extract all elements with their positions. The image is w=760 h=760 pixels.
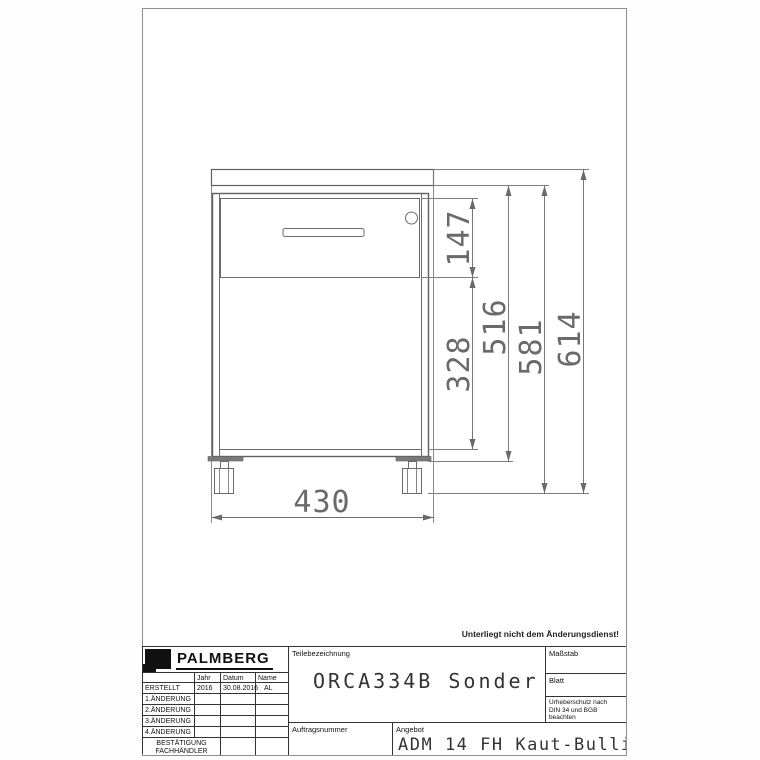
dim-overall-height-value: 614 <box>553 310 588 367</box>
top-panel <box>212 170 434 186</box>
row-aenderung4-label: 4.ÄNDERUNG <box>143 727 195 738</box>
palmberg-logo-mark-small-icon <box>143 664 156 672</box>
col-header-datum: Datum <box>221 673 256 683</box>
drawer-handle <box>283 229 364 237</box>
blatt-label: Blatt <box>546 674 626 685</box>
dim-lower-height-value: 328 <box>442 335 477 392</box>
row-confirmation-name <box>256 738 289 755</box>
left-caster-plate <box>208 457 243 462</box>
col-header-jahr: Jahr <box>195 673 221 683</box>
row-aenderung2-name <box>256 705 289 716</box>
row-aenderung2-label: 2.ÄNDERUNG <box>143 705 195 716</box>
row-aenderung3-jahr <box>195 716 221 727</box>
left-caster-stem <box>221 462 229 469</box>
dim-carcass-height-value: 516 <box>478 298 513 355</box>
blatt-cell: Blatt <box>546 674 626 697</box>
row-erstellt-datum: 30.08.2016 <box>221 683 256 694</box>
dim-drawer-height-value: 147 <box>442 209 477 266</box>
confirmation-line1: BESTÄTIGUNG <box>156 740 206 747</box>
teilebezeichnung-cell: Teilebezeichnung ORCA334B Sonder <box>289 647 546 723</box>
copyright-note: Urheberschutz nach DIN 34 und BGB beacht… <box>546 697 626 722</box>
col-header-name: Name <box>256 673 289 683</box>
teilebezeichnung-label: Teilebezeichnung <box>289 647 545 658</box>
carcass-outline <box>213 194 429 457</box>
row-aenderung4-datum <box>221 727 256 738</box>
rev-header-empty <box>143 673 195 683</box>
angebot-value: ADM 14 FH Kaut-Bullinger <box>398 735 626 755</box>
copyright-line3: beachten <box>549 714 576 721</box>
angebot-label: Angebot <box>393 723 626 734</box>
copyright-cell: Urheberschutz nach DIN 34 und BGB beacht… <box>546 697 626 723</box>
row-aenderung4-jahr <box>195 727 221 738</box>
dim-width-value: 430 <box>293 485 350 520</box>
title-block: PALMBERG Jahr Datum Name ERSTELLT 2016 3… <box>142 646 626 754</box>
right-caster-stem <box>409 462 417 469</box>
lock-cylinder <box>406 212 418 224</box>
row-aenderung1-name <box>256 694 289 705</box>
dim-caster-height-value: 581 <box>514 318 549 375</box>
confirmation-line2: FACHHÄNDLER <box>155 748 207 755</box>
row-aenderung1-jahr <box>195 694 221 705</box>
auftragsnummer-cell: Auftragsnummer <box>289 723 393 755</box>
row-erstellt-label: ERSTELLT <box>143 683 195 694</box>
change-service-note: Unterliegt nicht dem Änderungsdienst! <box>462 629 619 639</box>
right-caster-wheel <box>403 469 422 494</box>
row-aenderung3-name <box>256 716 289 727</box>
row-aenderung2-jahr <box>195 705 221 716</box>
row-confirmation-label: BESTÄTIGUNG FACHHÄNDLER <box>143 738 221 755</box>
row-aenderung1-label: 1.ÄNDERUNG <box>143 694 195 705</box>
left-caster-wheel <box>215 469 234 494</box>
row-aenderung2-datum <box>221 705 256 716</box>
row-erstellt-jahr: 2016 <box>195 683 221 694</box>
logo-cell: PALMBERG <box>143 647 289 673</box>
brand-name: PALMBERG <box>176 650 273 670</box>
angebot-cell: Angebot ADM 14 FH Kaut-Bullinger <box>393 723 626 755</box>
copyright-line1: Urheberschutz nach <box>549 699 607 706</box>
copyright-line2: DIN 34 und BGB <box>549 707 597 714</box>
auftragsnummer-label: Auftragsnummer <box>289 723 392 734</box>
right-caster-plate <box>396 457 431 462</box>
scanned-technical-drawing-sheet: 430 147 328 516 581 614 Unterliegt nicht… <box>0 0 760 760</box>
part-designation-value: ORCA334B Sonder <box>313 669 539 693</box>
drawer-front <box>221 199 420 278</box>
massstab-cell: Maßstab <box>546 647 626 674</box>
massstab-label: Maßstab <box>546 647 626 658</box>
row-aenderung3-label: 3.ÄNDERUNG <box>143 716 195 727</box>
row-confirmation-datum <box>221 738 256 755</box>
row-aenderung3-datum <box>221 716 256 727</box>
row-aenderung1-datum <box>221 694 256 705</box>
row-erstellt-name: AL <box>256 683 289 694</box>
row-aenderung4-name <box>256 727 289 738</box>
